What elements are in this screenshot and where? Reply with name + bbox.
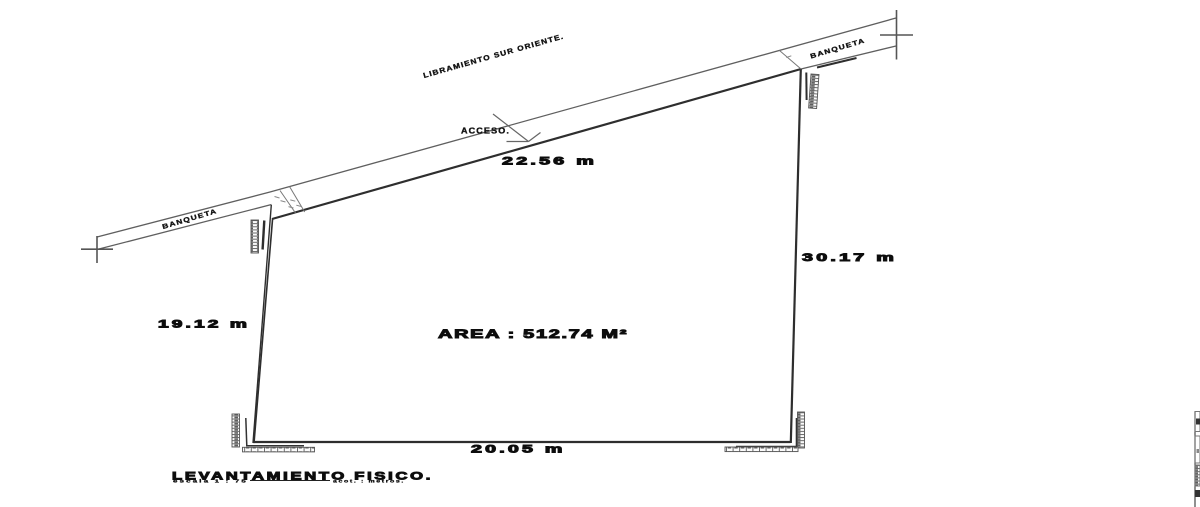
svg-text:20.05 m: 20.05 m (471, 443, 566, 455)
svg-text:ACCESO.: ACCESO. (461, 127, 510, 136)
svg-text:BANQUETA: BANQUETA (162, 208, 219, 231)
svg-text:acot. : metros.: acot. : metros. (333, 478, 405, 483)
svg-text:30.17 m: 30.17 m (802, 252, 897, 264)
svg-text:AREA : 512.74 M²: AREA : 512.74 M² (438, 327, 628, 341)
svg-text:19.12 m: 19.12 m (158, 319, 250, 331)
svg-text:22.56 m: 22.56 m (502, 156, 597, 168)
svg-text:LIBRAMIENTO SUR ORIENTE.: LIBRAMIENTO SUR ORIENTE. (422, 32, 565, 80)
svg-text:escala 1 : 75: escala 1 : 75 (173, 478, 248, 483)
svg-text:BANQUETA: BANQUETA (810, 38, 867, 61)
